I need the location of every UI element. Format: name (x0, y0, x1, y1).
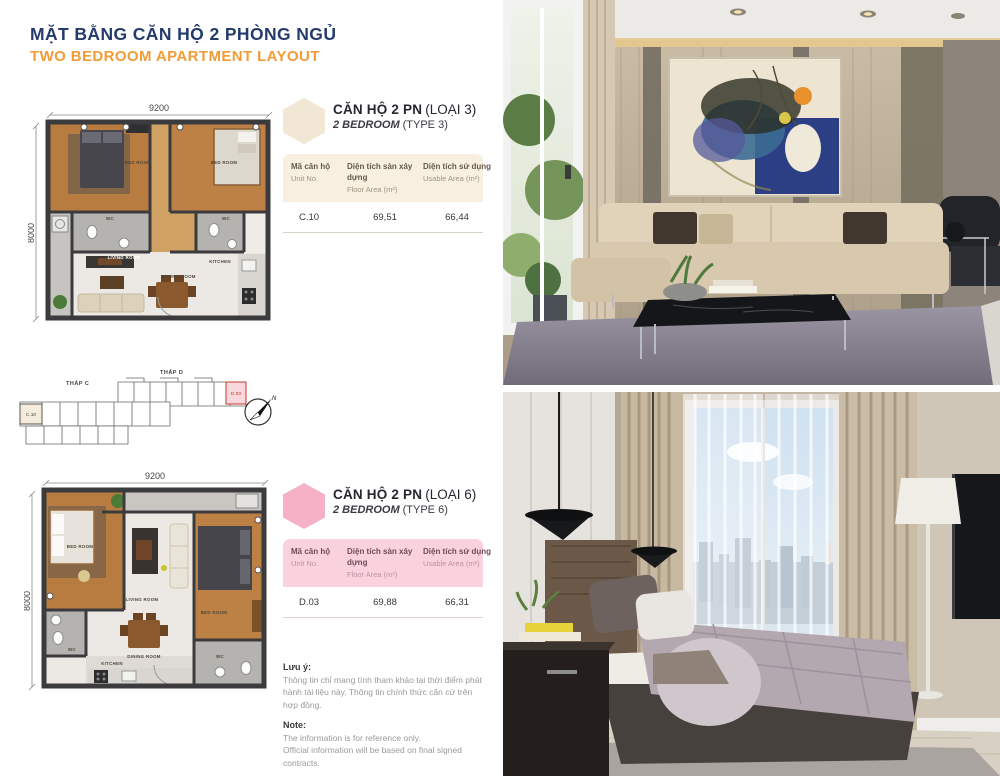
baseboard (917, 718, 1000, 732)
unit-title-en: 2 BEDROOM(TYPE 6) (333, 504, 476, 516)
tower-d-label: THÁP D (160, 369, 183, 376)
dining-table-icon (128, 620, 160, 648)
note-text-vi: Thông tin chỉ mang tính tham khảo tại th… (283, 674, 487, 711)
unit-title-vi: CĂN HỘ 2 PN(LOẠI 3) (333, 102, 476, 117)
page-title-vi: MẶT BẰNG CĂN HỘ 2 PHÒNG NGỦ (30, 24, 336, 45)
col-usable-en: Usable Area (m²) (423, 174, 491, 184)
unit-card-head: CĂN HỘ 2 PN(LOẠI 6) 2 BEDROOM(TYPE 6) (283, 483, 485, 529)
coffee-table-icon (100, 276, 124, 289)
room-label-bed1: BED ROOM (125, 160, 152, 165)
col-unit-en: Unit No. (291, 559, 347, 569)
sofa-icon (78, 294, 144, 312)
hexagon-icon (283, 483, 325, 529)
floor-area: 69,88 (347, 597, 423, 608)
room-label-bed1: BED ROOM (67, 544, 94, 549)
unit-title-vi: CĂN HỘ 2 PN(LOẠI 6) (333, 487, 476, 502)
room-label-dining: DINING ROOM (162, 274, 196, 279)
stool-icon (78, 570, 90, 582)
toilet-icon (209, 224, 219, 237)
living-room-photo (503, 0, 1000, 385)
brochure-page: MẶT BẰNG CĂN HỘ 2 PHÒNG NGỦ TWO BEDROOM … (0, 0, 1000, 776)
unit-table-row: C.10 69,51 66,44 (283, 202, 483, 233)
sink-icon (215, 667, 225, 677)
unit-title-en: 2 BEDROOM(TYPE 3) (333, 119, 476, 131)
books (519, 632, 581, 641)
room-label-bed2: BED ROOM (201, 610, 228, 615)
planter-box (533, 295, 567, 323)
note-label-vi: Lưu ý: (283, 662, 487, 672)
unit-table: Mã căn hộ Unit No. Diện tích sàn xây dựn… (283, 154, 483, 233)
notes-block: Lưu ý: Thông tin chỉ mang tính tham khảo… (283, 662, 487, 769)
unit-table: Mã căn hộ Unit No. Diện tích sàn xây dựn… (283, 539, 483, 618)
washer-icon (52, 216, 68, 232)
usable-area: 66,31 (423, 597, 491, 608)
sink-icon (51, 615, 61, 625)
room-label-wc2: WC (216, 654, 224, 659)
site-key-plan: THÁP C THÁP D D.03 C.10 (14, 364, 280, 450)
unit-card-type3: CĂN HỘ 2 PN(LOẠI 3) 2 BEDROOM(TYPE 3) Mã… (283, 98, 485, 233)
sofa (571, 203, 949, 308)
note-text-en1: The information is for reference only. (283, 732, 487, 744)
compass-icon: N (245, 396, 277, 425)
col-unit-vi: Mã căn hộ (291, 162, 347, 173)
tower-c-label: THÁP C (66, 380, 89, 387)
room-label-wc1: WC (68, 647, 76, 652)
sink-icon (228, 240, 237, 249)
door-handle-icon (565, 165, 571, 179)
floor-plan-type6: 9200 8000 (24, 470, 270, 702)
site-key-plan-svg: THÁP C THÁP D D.03 C.10 (14, 364, 280, 450)
col-usable-vi: Diện tích sử dụng (423, 162, 491, 173)
page-header: MẶT BẰNG CĂN HỘ 2 PHÒNG NGỦ TWO BEDROOM … (30, 24, 336, 65)
hallway (943, 40, 1000, 340)
unit-d03-label: D.03 (231, 391, 241, 397)
plant-bowl (663, 283, 707, 301)
pillow (843, 212, 887, 244)
dim-width-label: 9200 (149, 103, 169, 113)
floor-plan-type3: 9200 8000 (28, 102, 274, 334)
dining-table-icon (156, 282, 188, 308)
unit-c10-label: C.10 (26, 412, 36, 418)
room-label-wc1: WC (106, 216, 114, 221)
compass-n-label: N (272, 396, 277, 402)
books (709, 286, 757, 293)
note-label-en: Note: (283, 720, 487, 730)
drawer-handle (547, 670, 577, 674)
abstract-painting (669, 58, 841, 196)
col-floor-vi: Diện tích sàn xây dựng (347, 547, 423, 569)
usable-area: 66,44 (423, 212, 491, 223)
room-label-wc2: WC (222, 216, 230, 221)
page-title-en: TWO BEDROOM APARTMENT LAYOUT (30, 48, 336, 65)
room-label-dining: DINING ROOM (127, 654, 161, 659)
dim-height-label: 8000 (28, 223, 36, 243)
bench-icon (252, 600, 262, 632)
col-unit-vi: Mã căn hộ (291, 547, 347, 558)
toilet-icon (87, 226, 97, 239)
col-floor-vi: Diện tích sàn xây dựng (347, 162, 423, 184)
col-floor-en: Floor Area (m²) (347, 185, 423, 195)
unit-card-type6: CĂN HỘ 2 PN(LOẠI 6) 2 BEDROOM(TYPE 6) Mã… (283, 483, 485, 618)
tv-screen (955, 474, 1000, 619)
ac-unit-icon (236, 494, 258, 508)
unit-table-row: D.03 69,88 66,31 (283, 587, 483, 618)
col-usable-vi: Diện tích sử dụng (423, 547, 491, 558)
dim-height-label: 8000 (24, 591, 32, 611)
pillow (635, 589, 696, 641)
toilet-icon (241, 662, 251, 675)
room-label-kitchen: KITCHEN (209, 259, 231, 264)
bedroom-photo (503, 392, 1000, 776)
plant-icon (53, 295, 67, 309)
unit-table-header: Mã căn hộ Unit No. Diện tích sàn xây dựn… (283, 539, 483, 587)
bedroom-render (503, 392, 1000, 776)
room-label-living: LIVING ROOM (126, 597, 159, 602)
col-unit-en: Unit No. (291, 174, 347, 184)
hexagon-icon (283, 98, 325, 144)
floor-plan-type3-svg: 9200 8000 (28, 102, 274, 334)
pillow (699, 214, 733, 244)
note-text-en2: Official information will be based on fi… (283, 744, 487, 769)
unit-table-header: Mã căn hộ Unit No. Diện tích sàn xây dựn… (283, 154, 483, 202)
unit-no: C.10 (291, 212, 347, 223)
col-floor-en: Floor Area (m²) (347, 570, 423, 580)
pillow (653, 212, 697, 244)
toilet-icon (53, 632, 63, 645)
col-usable-en: Usable Area (m²) (423, 559, 491, 569)
floor-area: 69,51 (347, 212, 423, 223)
floor-plan-type6-svg: 9200 8000 (24, 470, 270, 702)
dim-width-label: 9200 (145, 471, 165, 481)
sink-icon (119, 238, 129, 248)
unit-no: D.03 (291, 597, 347, 608)
living-room-render (503, 0, 1000, 385)
sofa-icon (170, 524, 188, 588)
room-label-living: LIVING ROOM (108, 255, 141, 260)
unit-card-head: CĂN HỘ 2 PN(LOẠI 3) 2 BEDROOM(TYPE 3) (283, 98, 485, 144)
room-label-kitchen: KITCHEN (101, 661, 123, 666)
room-label-bed2: BED ROOM (211, 160, 238, 165)
